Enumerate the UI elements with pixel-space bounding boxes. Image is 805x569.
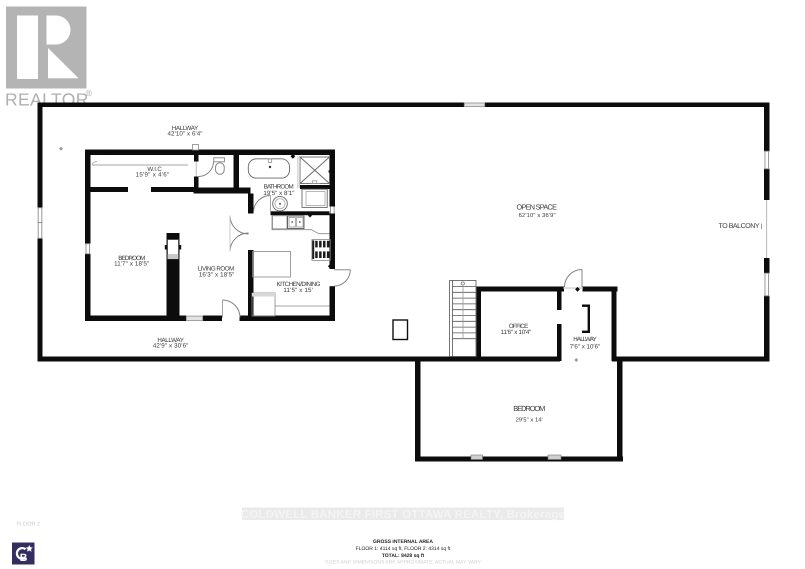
svg-text:FLOOR 2: FLOOR 2 <box>17 522 41 528</box>
svg-text:16'3" x 18'5": 16'3" x 18'5" <box>199 271 235 278</box>
svg-text:B: B <box>20 552 28 564</box>
svg-text:FLOOR 1: 4114 sq ft, FLOOR 2:: FLOOR 1: 4114 sq ft, FLOOR 2: 4314 sq ft <box>356 546 451 552</box>
svg-text:®: ® <box>86 88 93 98</box>
svg-text:GROSS INTERNAL AREA: GROSS INTERNAL AREA <box>373 539 433 545</box>
svg-text:TOTAL: 8428 sq ft: TOTAL: 8428 sq ft <box>382 553 425 559</box>
svg-text:11'6" x 10'4": 11'6" x 10'4" <box>501 329 532 336</box>
svg-text:42'9" x 30'6": 42'9" x 30'6" <box>153 343 189 350</box>
svg-text:11'5" x 15': 11'5" x 15' <box>283 287 313 294</box>
svg-text:62'10" x 36'9": 62'10" x 36'9" <box>519 212 556 219</box>
svg-text:BEDROOM: BEDROOM <box>513 404 545 413</box>
svg-text:15'9" x 4'6": 15'9" x 4'6" <box>136 171 170 178</box>
svg-text:SIZES AND DIMENSIONS ARE APPRO: SIZES AND DIMENSIONS ARE APPROXIMATE, AC… <box>325 560 481 566</box>
svg-text:7'6" x 10'6": 7'6" x 10'6" <box>570 343 601 350</box>
svg-text:29'5" x 14': 29'5" x 14' <box>516 416 543 423</box>
svg-text:OPEN SPACE: OPEN SPACE <box>516 203 557 212</box>
svg-text:11'7" x 18'5": 11'7" x 18'5" <box>114 261 149 268</box>
svg-text:TO BALCONY: TO BALCONY <box>719 223 760 230</box>
svg-text:COLDWELL BANKER FIRST OTTAWA R: COLDWELL BANKER FIRST OTTAWA REALTY, Bro… <box>241 509 565 521</box>
svg-text:42'10" x 6'4": 42'10" x 6'4" <box>168 130 203 137</box>
svg-text:HALLWAY: HALLWAY <box>573 336 597 343</box>
svg-text:19'5" x 8'1": 19'5" x 8'1" <box>263 190 294 197</box>
